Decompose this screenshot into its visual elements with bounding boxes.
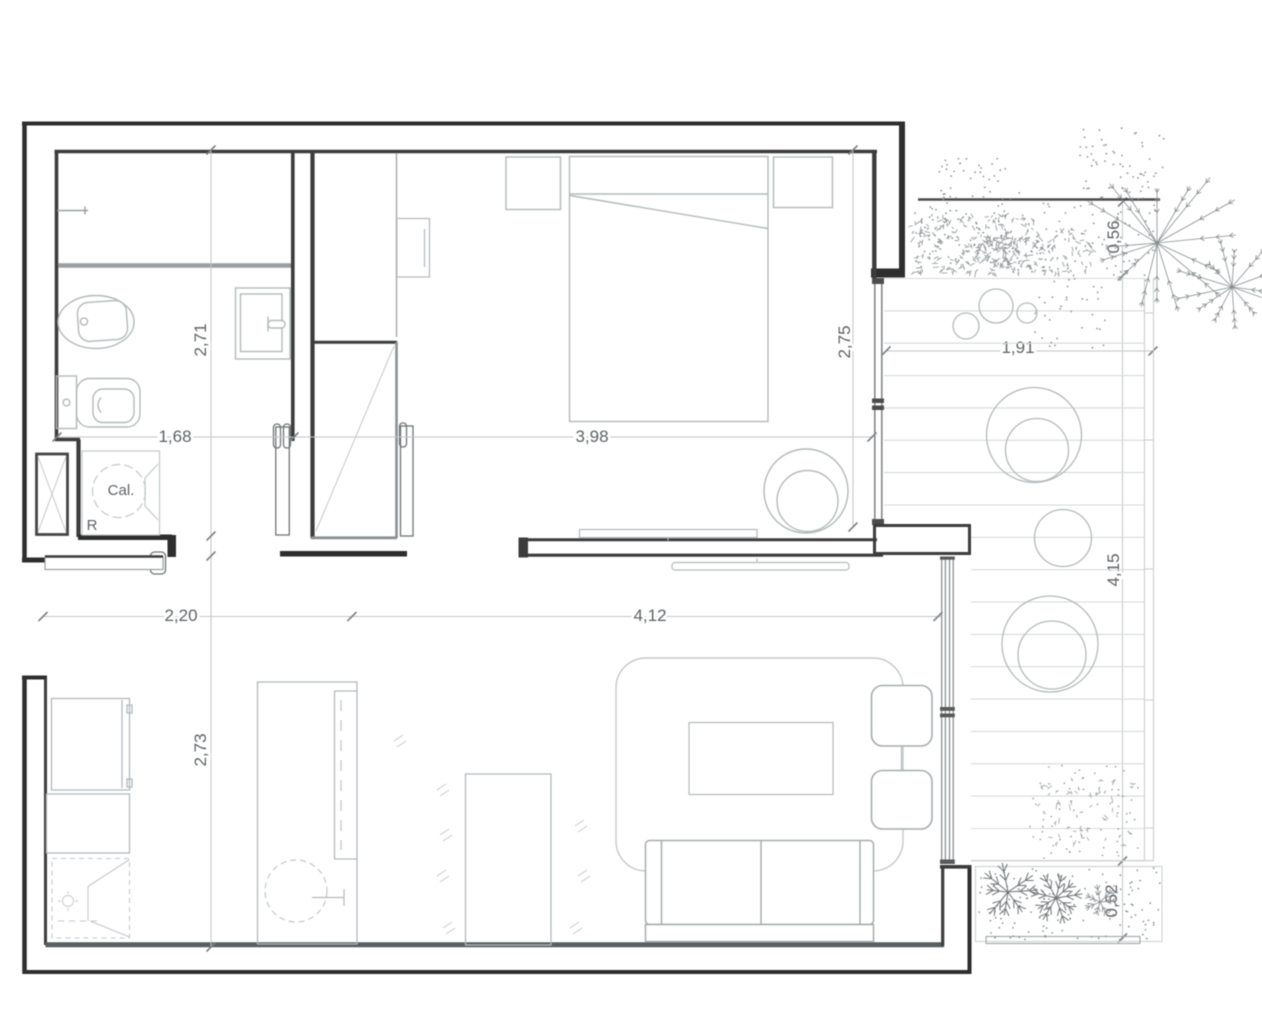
svg-text:Cal.: Cal. (108, 482, 135, 499)
svg-text:3,98: 3,98 (575, 427, 608, 446)
svg-text:2,75: 2,75 (835, 325, 854, 358)
svg-text:R: R (87, 517, 98, 534)
svg-text:2,20: 2,20 (164, 606, 197, 625)
svg-text:2,73: 2,73 (191, 733, 210, 766)
svg-text:2,71: 2,71 (191, 323, 210, 356)
svg-text:1,68: 1,68 (158, 427, 191, 446)
svg-text:4,12: 4,12 (633, 606, 666, 625)
svg-text:1,91: 1,91 (1001, 338, 1034, 357)
